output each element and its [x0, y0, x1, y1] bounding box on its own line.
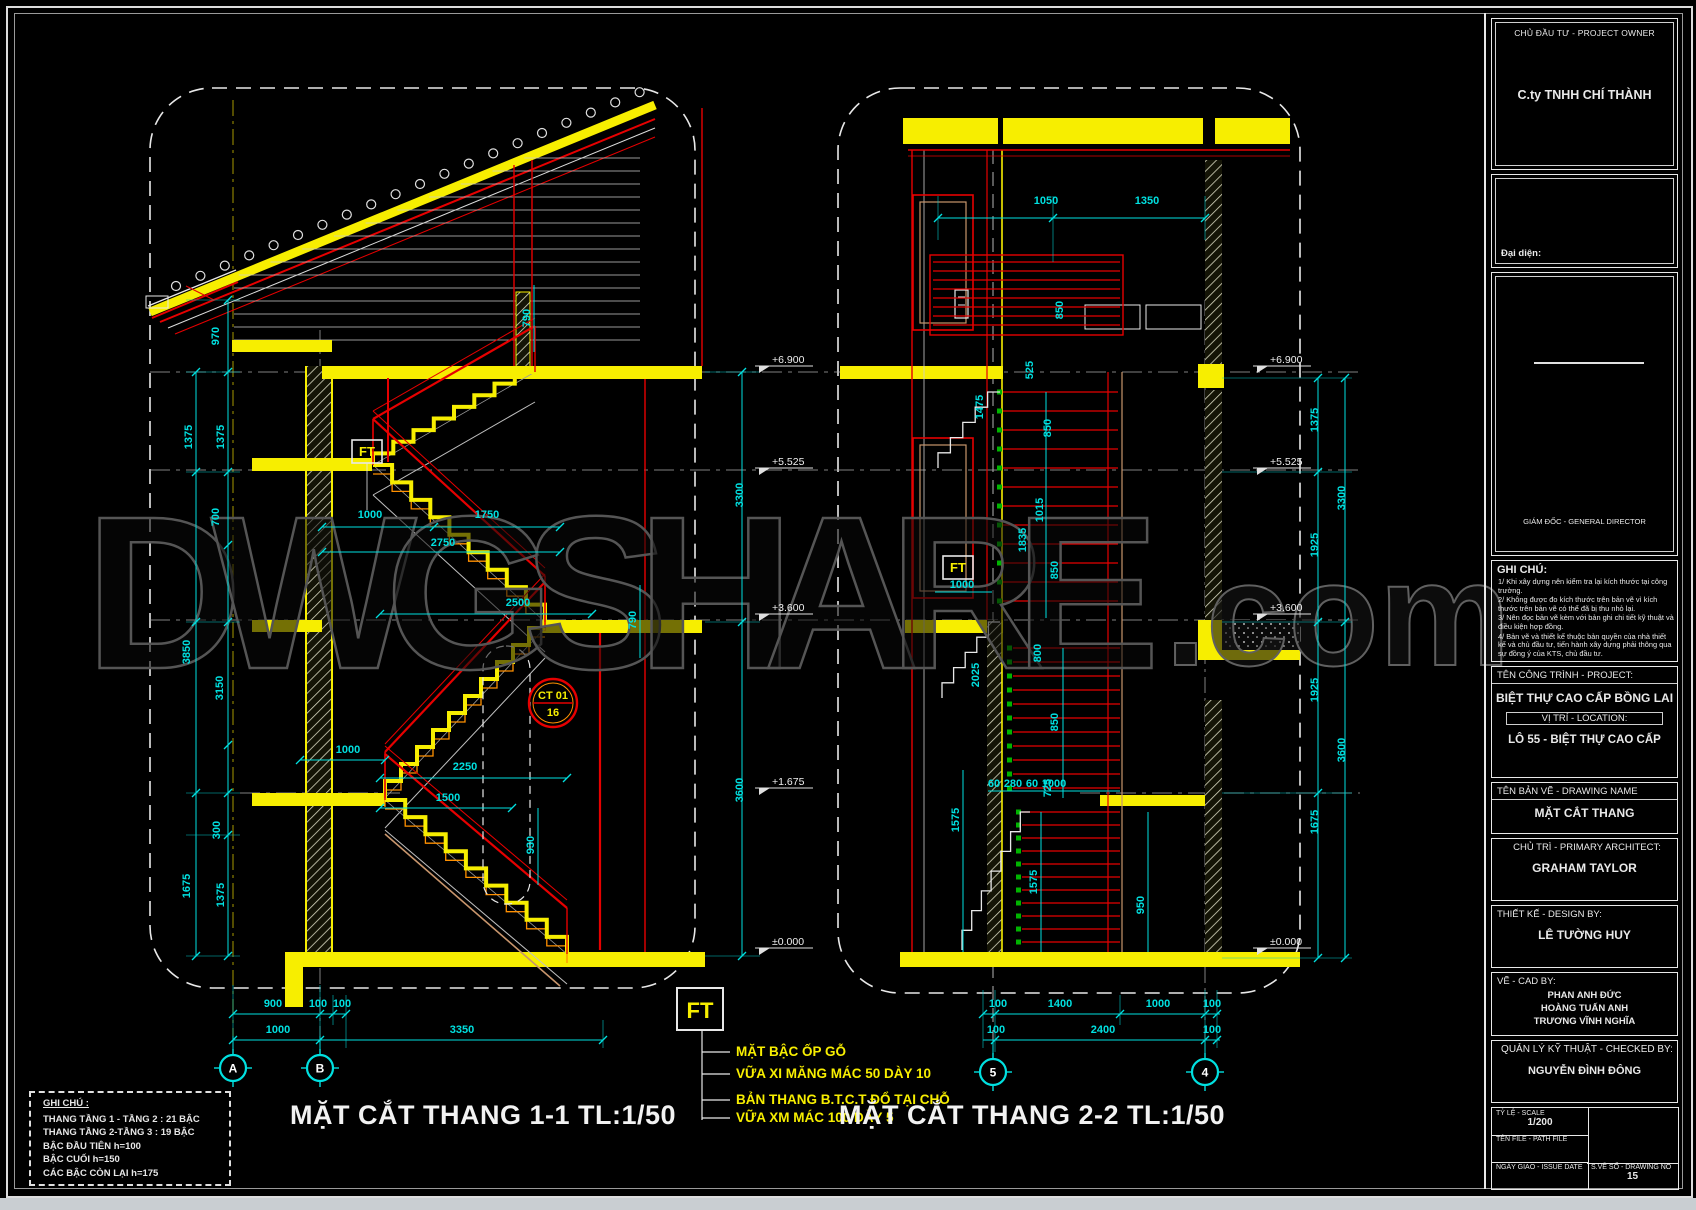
- cad-name: PHAN ANH ĐỨC: [1492, 989, 1677, 1002]
- ghichu-note: 3/ Nên đọc bản vẽ kèm với bản ghi chi ti…: [1498, 614, 1674, 631]
- cad-name: TRƯƠNG VĨNH NGHĨA: [1492, 1015, 1677, 1028]
- owner-name: C.ty TNHH CHÍ THÀNH: [1496, 88, 1673, 102]
- location-label: VỊ TRÍ - LOCATION:: [1506, 712, 1663, 725]
- title-block: CHỦ ĐẦU TƯ - PROJECT OWNER C.ty TNHH CHÍ…: [1484, 13, 1684, 1189]
- ghichu-note: 1/ Khi xây dựng nên kiểm tra lại kích th…: [1498, 578, 1674, 595]
- section-1-1-title: MẶT CẮT THANG 1-1 TL:1/50: [268, 1100, 698, 1131]
- ghichu-note: 4/ Bản vẽ và thiết kế thuộc bản quyền củ…: [1498, 633, 1674, 659]
- sheet-border-inner: [14, 13, 1683, 1189]
- meta-empty-cell: [1587, 1107, 1679, 1164]
- stair-note: THANG TẦNG 1 - TẦNG 2 : 21 BẬC: [43, 1113, 229, 1127]
- stair-note: CÁC BẬC CÒN LẠI h=175: [43, 1167, 229, 1181]
- design-box: THIẾT KẾ - DESIGN BY: LÊ TƯỜNG HUY: [1491, 905, 1678, 968]
- architect-label: CHỦ TRÌ - PRIMARY ARCHITECT:: [1492, 839, 1677, 855]
- checked-label: QUẢN LÝ KỸ THUẬT - CHECKED BY:: [1492, 1041, 1677, 1057]
- cad-box: VẼ - CAD BY: PHAN ANH ĐỨC HOÀNG TUẤN ANH…: [1491, 972, 1678, 1036]
- stair-note: THANG TẦNG 2-TẦNG 3 : 19 BẬC: [43, 1126, 229, 1140]
- architect-box: CHỦ TRÌ - PRIMARY ARCHITECT: GRAHAM TAYL…: [1491, 838, 1678, 901]
- drawing-label: TÊN BẢN VẼ - DRAWING NAME: [1492, 783, 1677, 800]
- ghichu-note: 2/ Không được đo kích thước trên bản vẽ …: [1498, 596, 1674, 613]
- representative-label: Đại diện:: [1501, 248, 1541, 259]
- meta-grid: TỶ LỆ - SCALE 1/200 TÊN FILE - PATH FILE…: [1491, 1107, 1678, 1189]
- number-label: S.VẼ SỐ - DRAWING NO: [1587, 1162, 1678, 1171]
- owner-label: CHỦ ĐẦU TƯ - PROJECT OWNER: [1496, 23, 1673, 38]
- scale-label: TỶ LỆ - SCALE: [1492, 1108, 1588, 1117]
- cad-label: VẼ - CAD BY:: [1492, 973, 1677, 989]
- section-2-2-title: MẶT CẮT THANG 2-2 TL:1/50: [817, 1100, 1247, 1131]
- director-label: GIÁM ĐỐC - GENERAL DIRECTOR: [1496, 517, 1673, 526]
- cad-sheet: CT 01 16 FT: [0, 0, 1696, 1210]
- scale-value: 1/200: [1492, 1117, 1588, 1128]
- ghichu-title: GHI CHÚ:: [1492, 561, 1677, 576]
- drawing-name: MẶT CẮT THANG: [1492, 800, 1677, 826]
- date-label: NGÀY GIAO - ISSUE DATE: [1492, 1162, 1588, 1171]
- stair-notes-title: GHI CHÚ :: [43, 1097, 229, 1111]
- stair-note: BẬC ĐẦU TIÊN h=100: [43, 1140, 229, 1154]
- owner-box: CHỦ ĐẦU TƯ - PROJECT OWNER C.ty TNHH CHÍ…: [1491, 18, 1678, 170]
- checked-name: NGUYỄN ĐÌNH ĐÔNG: [1492, 1057, 1677, 1085]
- representative-box: Đại diện:: [1491, 174, 1678, 268]
- director-box: GIÁM ĐỐC - GENERAL DIRECTOR: [1491, 272, 1678, 556]
- signature-line: [1534, 362, 1644, 364]
- project-box: TÊN CÔNG TRÌNH - PROJECT: BIỆT THỰ CAO C…: [1491, 666, 1678, 778]
- project-label: TÊN CÔNG TRÌNH - PROJECT:: [1492, 667, 1677, 684]
- page-bottom-strip: [0, 1198, 1696, 1210]
- ghichu-box: GHI CHÚ: 1/ Khi xây dựng nên kiểm tra lạ…: [1491, 560, 1678, 662]
- design-label: THIẾT KẾ - DESIGN BY:: [1492, 906, 1677, 922]
- stair-notes-box: GHI CHÚ : THANG TẦNG 1 - TẦNG 2 : 21 BẬC…: [29, 1091, 231, 1186]
- file-label: TÊN FILE - PATH FILE: [1492, 1134, 1588, 1143]
- location-name: LÔ 55 - BIỆT THỰ CAO CẤP: [1492, 725, 1677, 755]
- cad-name: HOÀNG TUẤN ANH: [1492, 1002, 1677, 1015]
- stair-note: BẬC CUỐI h=150: [43, 1153, 229, 1167]
- drawing-name-box: TÊN BẢN VẼ - DRAWING NAME MẶT CẮT THANG: [1491, 782, 1678, 834]
- checked-box: QUẢN LÝ KỸ THUẬT - CHECKED BY: NGUYỄN ĐÌ…: [1491, 1040, 1678, 1103]
- design-name: LÊ TƯỜNG HUY: [1492, 922, 1677, 948]
- architect-name: GRAHAM TAYLOR: [1492, 855, 1677, 881]
- number-value: 15: [1587, 1171, 1678, 1182]
- project-name: BIỆT THỰ CAO CẤP BỒNG LAI: [1492, 684, 1677, 712]
